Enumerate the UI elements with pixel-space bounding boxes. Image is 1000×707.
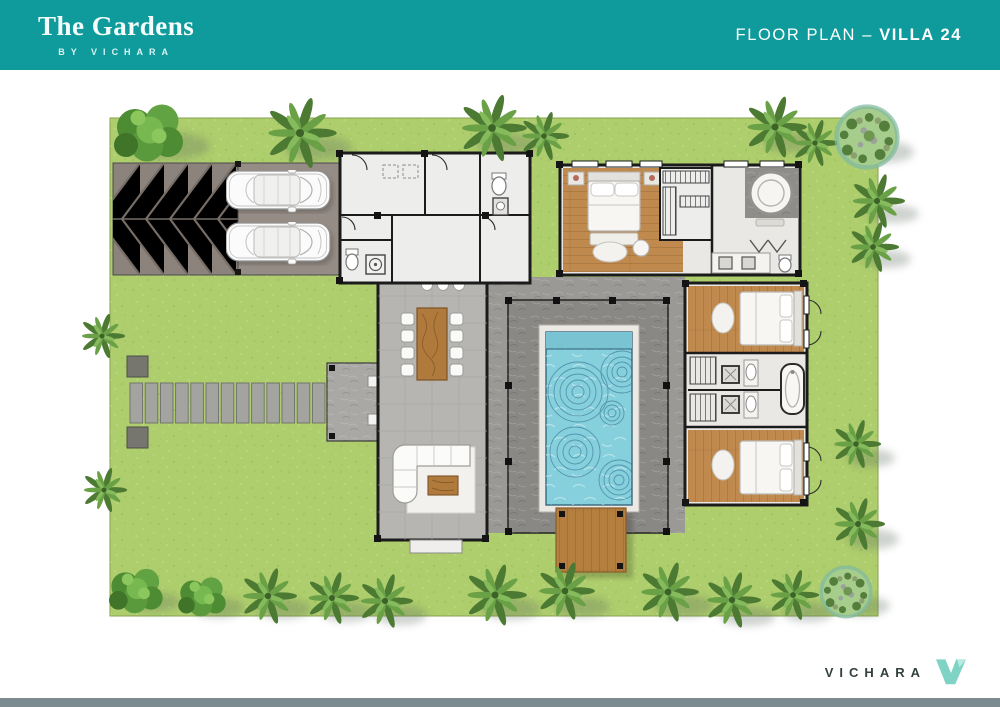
floor-plan-canvas bbox=[0, 0, 1000, 707]
bedroom-3 bbox=[688, 430, 804, 502]
vichara-v-logo-icon bbox=[936, 659, 966, 685]
coffee-table bbox=[428, 476, 458, 495]
living-area bbox=[393, 445, 475, 513]
rug bbox=[593, 242, 627, 262]
dining-table bbox=[417, 308, 447, 380]
page-title-prefix: FLOOR PLAN – bbox=[736, 26, 880, 44]
walk-in-closet bbox=[660, 168, 712, 240]
entry-patio bbox=[327, 363, 383, 441]
brand-subtitle: BY VICHARA bbox=[58, 47, 174, 57]
car-1 bbox=[226, 168, 333, 213]
garden-mound bbox=[821, 567, 870, 616]
hall-step bbox=[410, 540, 462, 553]
bathtub-round bbox=[750, 172, 792, 214]
timber-deck bbox=[556, 508, 633, 578]
bush bbox=[109, 569, 163, 613]
master-suite bbox=[560, 161, 800, 275]
page-title-villa: VILLA 24 bbox=[879, 26, 962, 44]
brand-logo: The Gardens BY VICHARA bbox=[38, 13, 194, 57]
swimming-pool bbox=[539, 325, 643, 512]
service-rooms bbox=[340, 153, 530, 283]
car-2 bbox=[226, 220, 333, 265]
toilet bbox=[779, 258, 791, 272]
page-title: FLOOR PLAN – VILLA 24 bbox=[736, 26, 962, 45]
bottom-accent-bar bbox=[0, 698, 1000, 707]
bush bbox=[178, 577, 226, 616]
page: The Gardens BY VICHARA FLOOR PLAN – VILL… bbox=[0, 0, 1000, 707]
footer-brand: VICHARA bbox=[825, 659, 966, 685]
garden-mound bbox=[837, 107, 898, 168]
armchair bbox=[633, 240, 649, 256]
guest-wing bbox=[685, 283, 821, 505]
header-bar: The Gardens BY VICHARA FLOOR PLAN – VILL… bbox=[0, 0, 1000, 70]
footer-brand-name: VICHARA bbox=[825, 665, 926, 680]
bush bbox=[114, 105, 183, 162]
brand-title: The Gardens bbox=[38, 13, 194, 40]
headboard bbox=[588, 172, 640, 181]
bedroom-2 bbox=[688, 286, 804, 353]
